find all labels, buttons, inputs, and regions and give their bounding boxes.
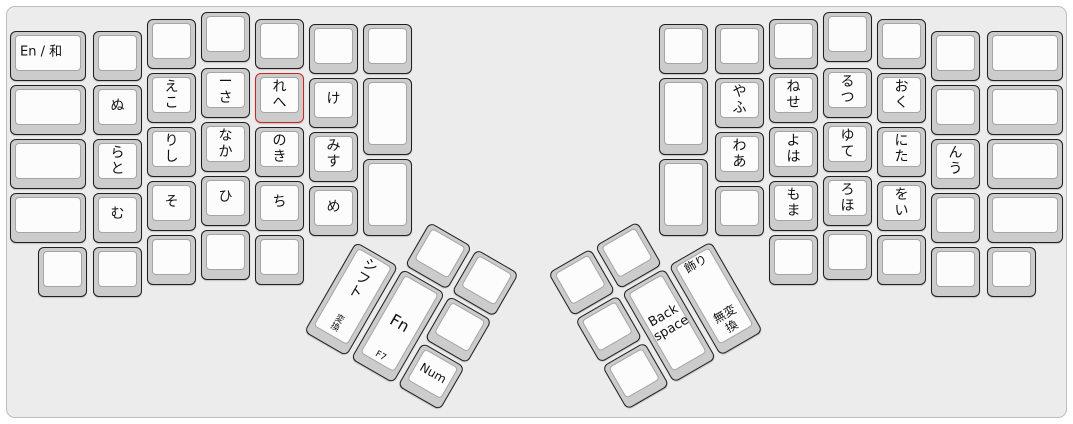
key-label: お xyxy=(886,79,917,95)
blank-key[interactable] xyxy=(769,19,818,69)
keycap-surface xyxy=(664,28,703,64)
keycap-surface: りし xyxy=(152,131,191,167)
keycap-surface: よは xyxy=(774,131,813,167)
key-label: ほ xyxy=(832,198,863,214)
keycap-surface xyxy=(664,82,703,145)
key-label: く xyxy=(886,95,917,111)
key-label: み xyxy=(318,138,349,154)
key-label: に xyxy=(886,133,917,149)
keycap-surface xyxy=(992,89,1058,125)
key-label: は xyxy=(778,149,809,165)
keycap-surface: ろほ xyxy=(828,180,867,216)
kana-key[interactable]: そ xyxy=(147,181,196,231)
key-label: へ xyxy=(264,95,295,111)
keycap-surface xyxy=(882,239,921,275)
key-label: Back space xyxy=(644,301,691,345)
key-label: け xyxy=(315,92,352,108)
key-label: ら xyxy=(102,145,133,161)
keycap-surface xyxy=(936,35,975,71)
keycap-surface: ひ xyxy=(206,180,245,216)
key-label: ろ xyxy=(832,182,863,198)
en-ja-toggle-key[interactable]: En / 和 xyxy=(10,31,86,81)
keycap-surface: け xyxy=(314,82,353,118)
kana-key[interactable]: らと xyxy=(93,139,142,189)
kana-key-highlighted[interactable]: れへ xyxy=(255,73,304,123)
blank-key[interactable] xyxy=(201,12,250,62)
key-label: Num xyxy=(413,359,452,389)
keycap-surface: En / 和 xyxy=(15,35,81,71)
key-label: 無変換 xyxy=(709,302,750,341)
keycap-surface xyxy=(260,23,299,59)
blank-key[interactable] xyxy=(363,24,412,74)
key-label: つ xyxy=(832,90,863,106)
keycap-surface xyxy=(720,28,759,64)
kana-key[interactable]: おく xyxy=(877,73,926,123)
blank-key[interactable] xyxy=(255,19,304,69)
key-label: F7 xyxy=(365,344,397,368)
keycap-surface: わあ xyxy=(720,136,759,172)
kana-key[interactable]: にた xyxy=(877,127,926,177)
keycap-surface: やふ xyxy=(720,82,759,118)
keycap-surface xyxy=(664,163,703,226)
keycap-surface xyxy=(368,28,407,64)
blank-key[interactable] xyxy=(769,235,818,285)
key-label: ま xyxy=(778,203,809,219)
blank-key[interactable] xyxy=(363,78,412,155)
key-label: を xyxy=(886,187,917,203)
keycap-surface xyxy=(15,89,81,125)
blank-key[interactable] xyxy=(823,230,872,280)
kana-key[interactable]: ーさ xyxy=(201,68,250,118)
kana-key[interactable]: ひ xyxy=(201,176,250,226)
key-label: な xyxy=(210,128,241,144)
key-label: い xyxy=(886,203,917,219)
blank-key[interactable] xyxy=(38,247,87,297)
kana-key[interactable]: やふ xyxy=(715,78,764,128)
blank-key[interactable] xyxy=(363,159,412,236)
keycap-surface xyxy=(774,239,813,275)
keycap-surface xyxy=(882,23,921,59)
kana-key[interactable]: ぬ xyxy=(93,85,142,135)
keycap-surface: ぬ xyxy=(98,89,137,125)
key-label: む xyxy=(99,207,136,223)
keycap-surface xyxy=(828,16,867,52)
kana-key[interactable]: るつ xyxy=(823,68,872,118)
blank-key[interactable] xyxy=(659,78,708,155)
blank-key[interactable] xyxy=(823,12,872,62)
blank-key[interactable] xyxy=(659,24,708,74)
keycap-surface: ーさ xyxy=(206,72,245,108)
key-label: シフト xyxy=(344,256,380,303)
blank-key[interactable] xyxy=(931,193,980,243)
key-label: れ xyxy=(264,79,295,95)
keyboard-layout-canvas: En / 和ぬらとむえこりしそーさなかひれへのきちけみすめやふわあねせよはもまる… xyxy=(0,0,1073,424)
keycap-surface: め xyxy=(314,190,353,226)
key-label: す xyxy=(318,154,349,170)
key-label: ん xyxy=(940,145,971,161)
blank-key[interactable] xyxy=(877,19,926,69)
key-label: め xyxy=(315,200,352,216)
blank-key[interactable] xyxy=(93,31,142,81)
blank-key[interactable] xyxy=(10,85,86,135)
blank-key[interactable] xyxy=(987,247,1036,297)
kana-key[interactable]: わあ xyxy=(715,132,764,182)
keycap-surface xyxy=(720,190,759,226)
keycap-surface: なか xyxy=(206,126,245,162)
kana-key[interactable]: をい xyxy=(877,181,926,231)
keycap-surface: るつ xyxy=(828,72,867,108)
keycap-surface xyxy=(206,16,245,52)
keycap-surface xyxy=(774,23,813,59)
key-label: と xyxy=(102,161,133,177)
key-label: Fn xyxy=(379,306,420,340)
key-label: き xyxy=(264,149,295,165)
keycap-surface: んう xyxy=(936,143,975,179)
blank-key[interactable] xyxy=(309,24,358,74)
key-label: か xyxy=(210,144,241,160)
key-label: る xyxy=(832,74,863,90)
keycap-surface: む xyxy=(98,197,137,233)
kana-key[interactable]: ち xyxy=(255,181,304,231)
key-label: も xyxy=(778,187,809,203)
key-label: ー xyxy=(210,74,241,90)
keycap-surface xyxy=(15,143,81,179)
blank-key[interactable] xyxy=(10,139,86,189)
key-label: あ xyxy=(724,154,755,170)
keycap-surface xyxy=(314,28,353,64)
keycap-surface xyxy=(936,197,975,233)
kana-key[interactable]: ろほ xyxy=(823,176,872,226)
blank-key[interactable] xyxy=(715,24,764,74)
keycap-surface xyxy=(260,239,299,275)
kana-key[interactable]: りし xyxy=(147,127,196,177)
keycap-surface: えこ xyxy=(152,77,191,113)
keycap-surface: れへ xyxy=(260,77,299,113)
key-label: 飾り xyxy=(679,251,713,278)
key-label: せ xyxy=(778,95,809,111)
blank-key[interactable] xyxy=(93,247,142,297)
kana-key[interactable]: みす xyxy=(309,132,358,182)
key-label: り xyxy=(156,133,187,149)
kana-key[interactable]: んう xyxy=(931,139,980,189)
blank-key[interactable] xyxy=(931,247,980,297)
kana-key[interactable]: ゆて xyxy=(823,122,872,172)
keycap-surface xyxy=(43,251,82,287)
key-label: 変換 xyxy=(327,314,345,336)
keycap-surface xyxy=(368,82,407,145)
key-label: ふ xyxy=(724,100,755,116)
keycap-surface: のき xyxy=(260,131,299,167)
key-label: し xyxy=(156,149,187,165)
kana-key[interactable]: えこ xyxy=(147,73,196,123)
key-label: ゆ xyxy=(832,128,863,144)
keycap-surface xyxy=(98,35,137,71)
keycap-surface xyxy=(152,23,191,59)
key-label: En / 和 xyxy=(20,46,62,61)
blank-key[interactable] xyxy=(147,19,196,69)
kana-key[interactable]: め xyxy=(309,186,358,236)
key-label: わ xyxy=(724,138,755,154)
key-label: う xyxy=(940,161,971,177)
keycap-surface: おく xyxy=(882,77,921,113)
keycap-surface xyxy=(15,197,81,233)
keycap-surface: ゆて xyxy=(828,126,867,162)
keycap-surface xyxy=(992,197,1058,233)
kana-key[interactable]: む xyxy=(93,193,142,243)
blank-key[interactable] xyxy=(877,235,926,285)
key-label: や xyxy=(724,84,755,100)
kana-key[interactable]: け xyxy=(309,78,358,128)
kana-key[interactable]: ねせ xyxy=(769,73,818,123)
kana-key[interactable]: なか xyxy=(201,122,250,172)
blank-key[interactable] xyxy=(987,85,1063,135)
blank-key[interactable] xyxy=(987,139,1063,189)
keycap-surface xyxy=(206,234,245,270)
keycap-surface xyxy=(936,89,975,125)
keycap-surface xyxy=(992,251,1031,287)
key-label: ち xyxy=(261,195,298,211)
key-label: ぬ xyxy=(99,99,136,115)
blank-key[interactable] xyxy=(931,31,980,81)
keycap-surface: をい xyxy=(882,185,921,221)
blank-key[interactable] xyxy=(10,193,86,243)
key-label: て xyxy=(832,144,863,160)
key-label: さ xyxy=(210,90,241,106)
keycap-surface xyxy=(368,163,407,226)
keycap-surface xyxy=(828,234,867,270)
keycap-surface: ち xyxy=(260,185,299,221)
key-label: こ xyxy=(156,95,187,111)
key-label: の xyxy=(264,133,295,149)
keycap-surface: らと xyxy=(98,143,137,179)
key-label: ひ xyxy=(207,190,244,206)
keycap-surface: みす xyxy=(314,136,353,172)
blank-key[interactable] xyxy=(147,235,196,285)
kana-key[interactable]: よは xyxy=(769,127,818,177)
key-label: た xyxy=(886,149,917,165)
blank-key[interactable] xyxy=(987,31,1063,81)
blank-key[interactable] xyxy=(255,235,304,285)
keycap-surface: にた xyxy=(882,131,921,167)
key-label: ね xyxy=(778,79,809,95)
keycap-surface xyxy=(992,35,1058,71)
keycap-surface: もま xyxy=(774,185,813,221)
blank-key[interactable] xyxy=(715,186,764,236)
blank-key[interactable] xyxy=(987,193,1063,243)
keycap-surface xyxy=(152,239,191,275)
keycap-surface xyxy=(98,251,137,287)
key-label: よ xyxy=(778,133,809,149)
keycap-surface: ねせ xyxy=(774,77,813,113)
blank-key[interactable] xyxy=(659,159,708,236)
blank-key[interactable] xyxy=(931,85,980,135)
kana-key[interactable]: のき xyxy=(255,127,304,177)
key-label: そ xyxy=(153,195,190,211)
kana-key[interactable]: もま xyxy=(769,181,818,231)
keycap-surface xyxy=(936,251,975,287)
keycap-surface: そ xyxy=(152,185,191,221)
keycap-surface xyxy=(992,143,1058,179)
blank-key[interactable] xyxy=(201,230,250,280)
key-label: え xyxy=(156,79,187,95)
